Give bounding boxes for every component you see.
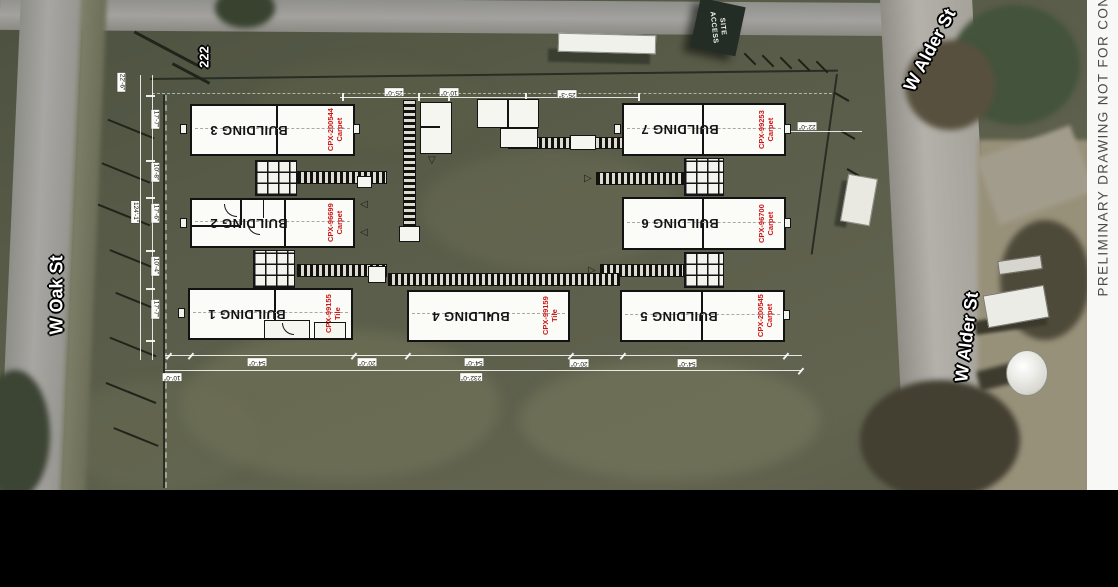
dimension-label: 20'-0" [358,358,377,366]
dimension-label: 232'-0" [460,373,482,381]
finish-label: CPX-99159Tile [532,292,568,340]
connector-tab [784,218,791,228]
dim-tick [798,367,804,374]
dim-tick [620,352,626,359]
dimension-label: 22'-0" [798,122,817,130]
aerial-photo: 22'-6"17'-7"10'-8"17'-6"124'-1"10'-4"17'… [0,0,1087,490]
site-access-sign: SITE ACCESS [690,0,745,56]
finish-label: CPX-96699Carpet [317,200,353,246]
arrow-icon: ▽ [428,156,436,166]
building-name: BUILDING 3 [192,106,305,154]
building-name: BUILDING 7 [624,105,736,154]
building-2: BUILDING 2 CPX-96699Carpet [190,198,355,248]
covered-walkway [596,172,684,185]
dimension-label: 10'-8" [151,163,159,182]
utility-building [420,102,452,154]
arrow-icon: ◁ [360,228,368,238]
utility-building [500,128,538,148]
street-label-w-oak-st: W Oak St [17,285,96,306]
preliminary-note: PRELIMINARY DRAWING NOT FOR CON [1095,0,1110,296]
fence-hatch [762,55,775,68]
dim-tick [188,352,194,359]
pole-shadow [109,249,154,269]
dimension-label: 54'-0" [465,358,484,366]
dimension-label: 10'-0" [163,373,182,381]
building-name: BUILDING 4 [409,292,533,340]
finish-label: CPX-200545Carpet [747,292,783,340]
fence-hatch [780,57,793,70]
breezeway-grid [684,158,724,196]
connector-tab [180,218,187,228]
arrow-icon: ◁ [360,200,368,210]
connector-tab [614,124,621,134]
dim-tick [783,352,789,359]
connector-tab [784,124,791,134]
street-label-w-alder-st-upper: W Alder St [885,40,975,61]
breezeway-grid [255,160,297,196]
walkway-landing [368,266,386,283]
building-3: BUILDING 3 CPX-200544Carpet [190,104,355,156]
pole-shadow [107,119,154,140]
building-name: BUILDING 5 [622,292,735,340]
building-5: BUILDING 5 CPX-200545Carpet [620,290,785,342]
utility-wall [420,126,440,128]
pole-shadow [98,204,151,227]
fence-north [150,70,838,80]
site-access-label: SITE ACCESS [707,10,728,44]
building-7: BUILDING 7 CPX-99253Carpet [622,103,786,156]
dimension-label: 25'-3" [558,90,577,98]
dim-tick [638,93,640,101]
arrow-icon: ▷ [588,266,596,276]
dimension-label: 22'-6" [117,73,125,92]
breezeway-grid [253,250,295,288]
dimension-label: 54'-0" [248,358,267,366]
dim-line-top [340,97,640,98]
dim-tick [146,340,155,342]
fence-east [811,74,838,255]
brush [860,380,1020,490]
dim-tick [418,93,420,101]
sheet-margin-strip: PRELIMINARY DRAWING NOT FOR CON [1087,0,1118,490]
building-name: BUILDING 6 [624,199,736,248]
dimension-label: 20'-0" [570,359,589,367]
connector-tab [783,310,790,320]
dim-line-right [788,131,862,132]
building-name: BUILDING 1 [190,290,303,338]
covered-walkway [297,171,387,184]
dimension-label: 17'-7" [151,110,159,129]
letterbox-bottom [0,490,1118,587]
dimension-label: 17'-6" [151,204,159,223]
arrow-icon: ▷ [584,174,592,184]
storage-tank [1006,350,1048,396]
finish-label: CPX-99253Carpet [748,105,784,154]
building-name: BUILDING 2 [192,200,305,246]
connector-tab [180,124,187,134]
dimension-label: 25'-0" [385,88,404,96]
fence-hatch [835,92,850,102]
dim-tick [146,197,155,199]
dim-line-bottom-total [165,370,802,371]
fence-hatch [744,53,757,66]
marker-222: 222 [193,50,215,65]
utility-wall [507,99,509,128]
dim-tick [146,250,155,252]
semi-trailer [558,33,656,55]
walkway-landing [357,176,372,188]
walkway-landing [399,226,420,242]
breezeway-grid [684,252,724,288]
street-label-w-alder-st-lower: W Alder St [922,327,1012,348]
dimension-label: 10'-0" [440,88,459,96]
pole-shadow [102,162,151,183]
grass-patch [60,380,260,490]
covered-walkway-vertical [403,100,416,228]
finish-label: CPX-96700Carpet [748,199,784,248]
pole-shadow [134,31,202,69]
dim-tick [146,160,155,162]
finish-label: CPX-200544Carpet [317,106,353,154]
building-4: BUILDING 4 CPX-99159Tile [407,290,570,342]
grass-patch [520,360,820,480]
dim-tick [146,95,155,97]
site-plan-sheet: 22'-6"17'-7"10'-8"17'-6"124'-1"10'-4"17'… [0,0,1118,587]
survey-dashed-line [152,93,832,94]
connector-tab [178,308,185,318]
dimension-label: 124'-1" [131,201,139,223]
building-1: BUILDING 1 CPX-99155Tile [188,288,353,340]
dim-line-left [140,75,141,360]
dim-line-bottom [165,355,802,356]
covered-walkway-long [388,273,620,286]
dimension-label: 54'-0" [678,359,697,367]
connector-tab [353,124,360,134]
dimension-label: 17'-7" [151,300,159,319]
building-6: BUILDING 6 CPX-96700Carpet [622,197,786,250]
fence-west-dashes [165,95,167,488]
dim-tick [146,288,155,290]
finish-label: CPX-99155Tile [315,290,351,338]
dim-tick [342,93,344,101]
walkway-landing [570,135,596,150]
dimension-label: 10'-4" [151,257,159,276]
